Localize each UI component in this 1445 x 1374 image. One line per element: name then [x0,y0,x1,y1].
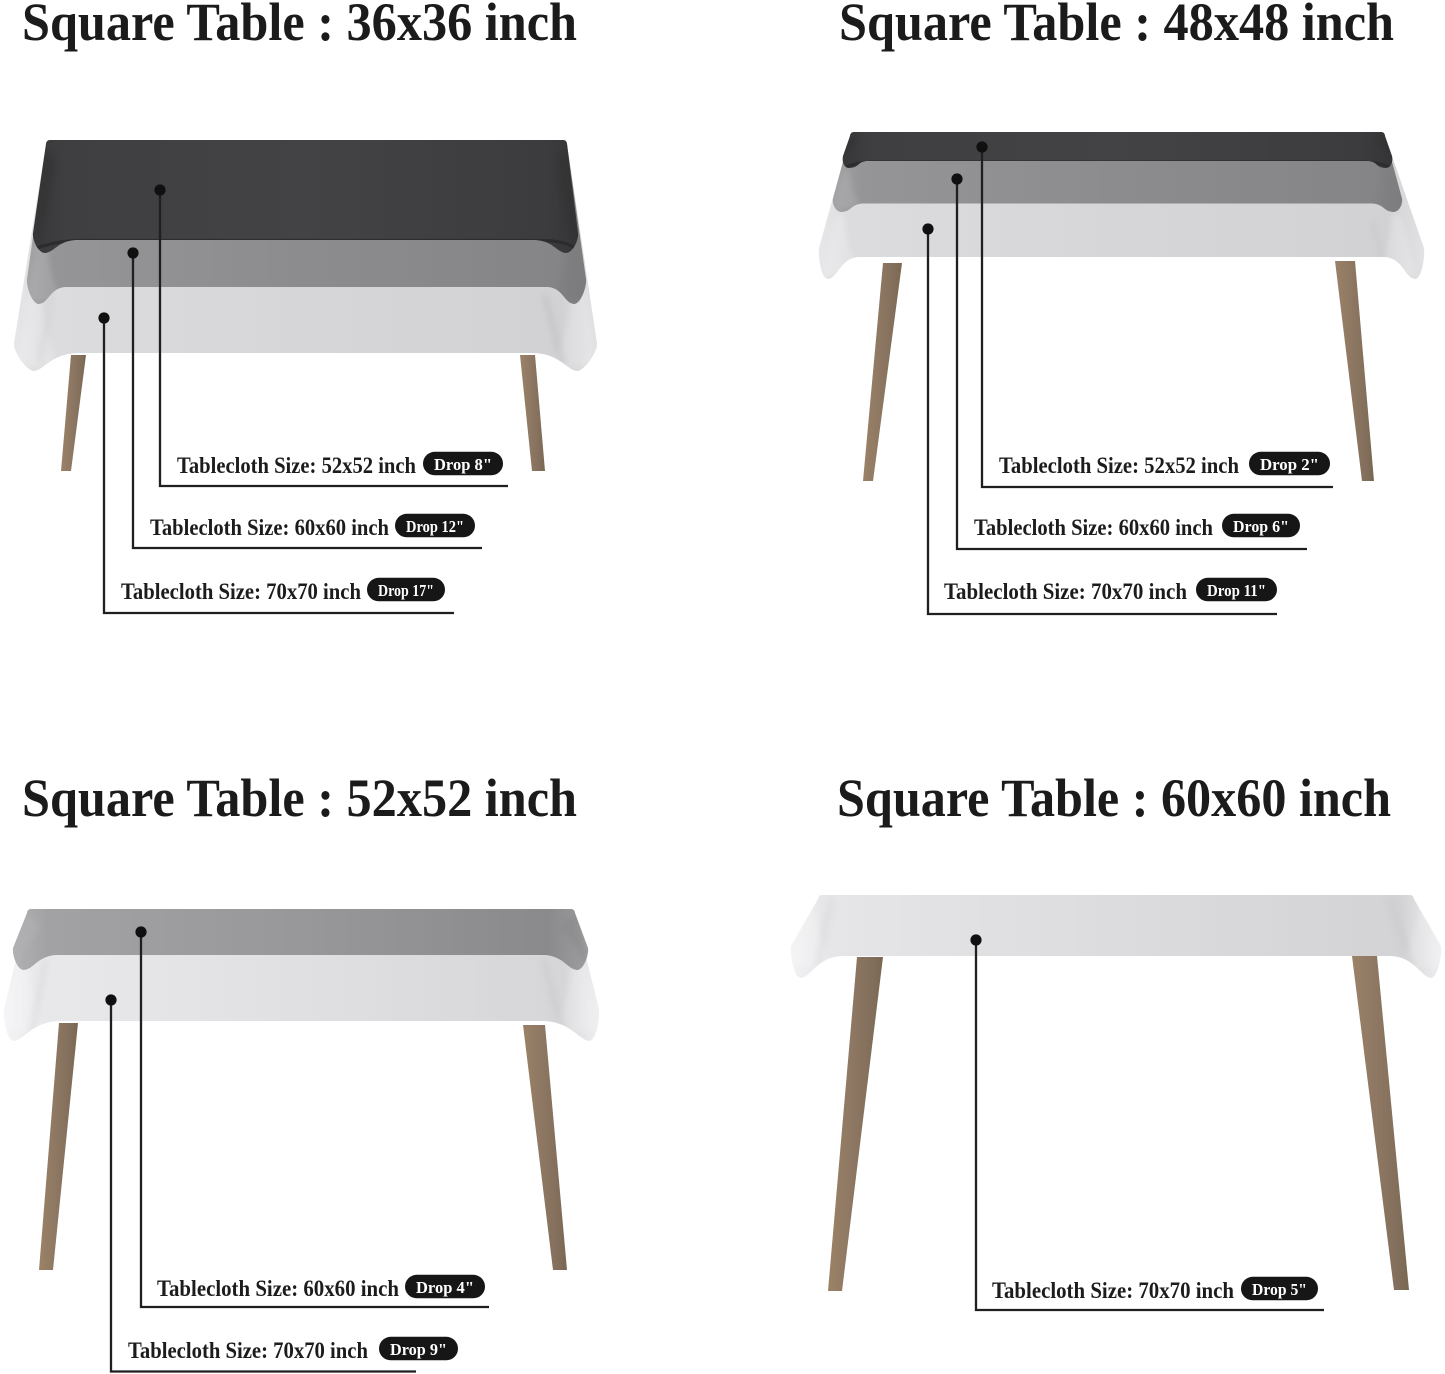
svg-text:Tablecloth Size: 60x60 inch: Tablecloth Size: 60x60 inch [974,515,1213,541]
svg-text:Drop 11": Drop 11" [1207,581,1266,600]
svg-text:Drop 4": Drop 4" [416,1278,474,1297]
svg-text:Drop 2": Drop 2" [1260,455,1319,474]
svg-text:Tablecloth Size: 52x52 inch: Tablecloth Size: 52x52 inch [999,453,1239,479]
svg-text:Drop 9": Drop 9" [390,1340,447,1359]
svg-text:Drop 8": Drop 8" [434,455,492,474]
svg-text:Tablecloth Size: 60x60 inch: Tablecloth Size: 60x60 inch [150,515,389,541]
svg-text:Tablecloth Size: 70x70 inch: Tablecloth Size: 70x70 inch [992,1278,1234,1304]
svg-text:Tablecloth Size: 70x70 inch: Tablecloth Size: 70x70 inch [128,1338,368,1364]
svg-text:Tablecloth Size: 52x52 inch: Tablecloth Size: 52x52 inch [177,453,416,479]
svg-text:Drop 12": Drop 12" [406,517,464,536]
svg-text:Square Table : 52x52 inch: Square Table : 52x52 inch [22,768,577,828]
svg-text:Square Table : 60x60 inch: Square Table : 60x60 inch [837,768,1391,828]
svg-text:Tablecloth Size: 60x60 inch: Tablecloth Size: 60x60 inch [157,1276,399,1302]
svg-text:Tablecloth Size: 70x70 inch: Tablecloth Size: 70x70 inch [944,579,1187,605]
svg-text:Drop 6": Drop 6" [1233,517,1289,536]
svg-text:Drop 5": Drop 5" [1252,1280,1307,1299]
svg-text:Tablecloth Size: 70x70 inch: Tablecloth Size: 70x70 inch [121,579,361,605]
svg-text:Drop 17": Drop 17" [378,581,434,600]
svg-text:Square Table : 36x36 inch: Square Table : 36x36 inch [22,0,577,52]
svg-text:Square Table : 48x48 inch: Square Table : 48x48 inch [839,0,1394,52]
